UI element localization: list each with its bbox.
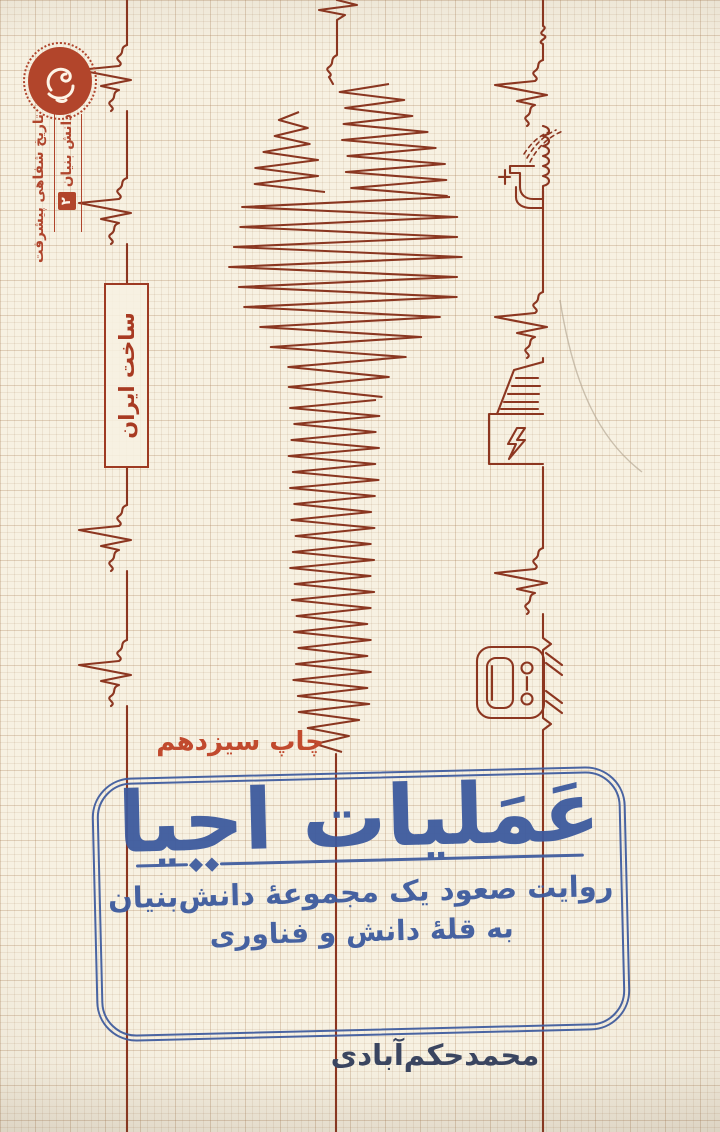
faucet-icon (499, 130, 563, 208)
diamond-dot (205, 857, 219, 871)
publisher-logo-mark (28, 47, 92, 115)
book-subtitle-line2: به قلهٔ دانش و فناوری (209, 911, 514, 951)
book-subtitle-line1: روایت صعود یک مجموعهٔ دانش‌بنیان (108, 869, 614, 915)
series-subtitle: دانش بنیان (55, 114, 81, 187)
diamond-dot (189, 858, 203, 872)
lightning-bolt-icon (508, 428, 525, 459)
series-title: تاریخ شفاهی پیشرفت (27, 114, 55, 232)
washing-machine-icon (477, 647, 562, 718)
power-plant-icon (489, 362, 543, 464)
edition-label: چاپ سیزدهم (140, 727, 324, 757)
series-subtitle-row: دانش بنیان ۲ (55, 114, 83, 232)
paper-crease (560, 300, 642, 472)
series-number-badge: ۲ (58, 192, 76, 210)
author-name: محمدحکم‌آبادی (250, 1038, 620, 1072)
wrench-scribble (229, 84, 462, 752)
book-cover: تاریخ شفاهی پیشرفت دانش بنیان ۲ ساخت ایر… (0, 0, 720, 1132)
publisher-logo (23, 42, 97, 120)
title-stamp: عَمَلیات احیا روایت صعود یک مجموعهٔ دانش… (91, 766, 631, 1043)
made-in-iran-label: ساخت ایران (104, 283, 149, 468)
